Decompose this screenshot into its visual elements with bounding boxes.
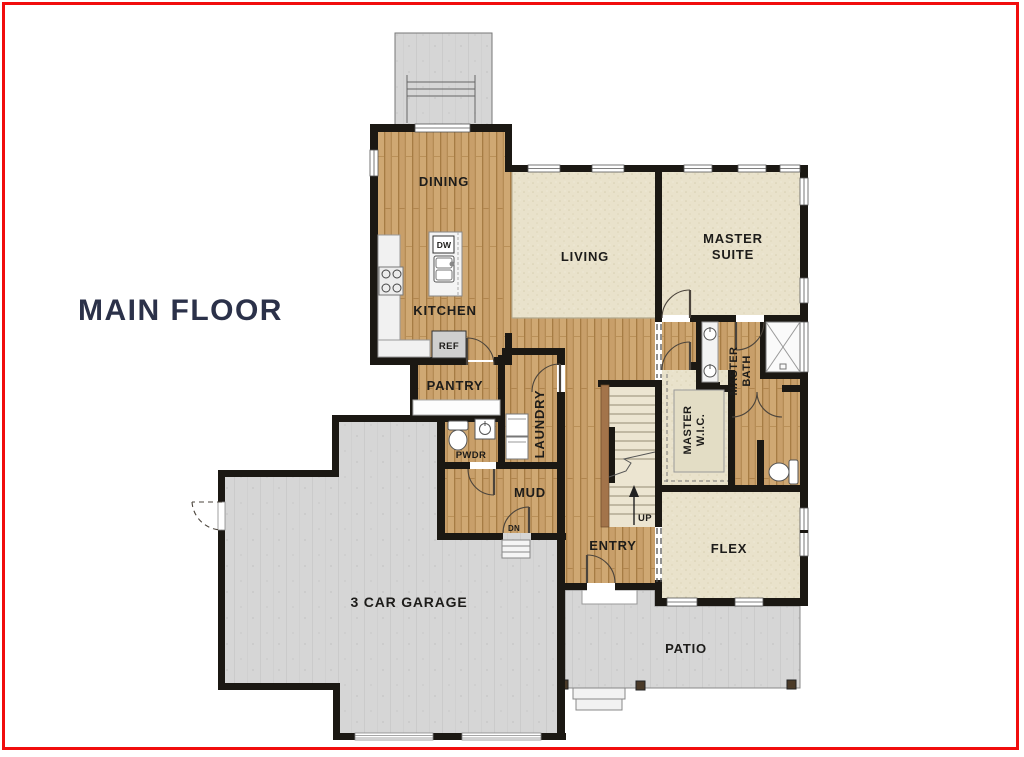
shower-window (800, 322, 808, 372)
washer (506, 414, 528, 436)
patio-post (787, 680, 796, 689)
master-bath-label-line1: MASTER (728, 347, 740, 396)
pwdr-sink (475, 419, 495, 439)
pantry-label: PANTRY (427, 378, 484, 393)
basement-stairs (502, 540, 530, 558)
garage-side-door (192, 502, 222, 530)
master-wic-label-line1: MASTER (682, 406, 694, 455)
laundry-label: LAUNDRY (532, 390, 547, 459)
mud-label: MUD (514, 485, 546, 500)
dryer (506, 437, 528, 459)
flex-label: FLEX (711, 541, 747, 556)
master-bath-label-line2: BATH (741, 355, 753, 386)
pantry-shelf (413, 400, 500, 415)
page-title: MAIN FLOOR (78, 294, 283, 328)
pwdr-label: PWDR (456, 450, 487, 461)
patio-step (576, 699, 622, 710)
kitchen-counter (378, 235, 400, 357)
stairs-down-label: DN (508, 524, 520, 533)
laundry-fixtures (506, 414, 528, 459)
pwdr-toilet (448, 421, 468, 450)
entry-label: ENTRY (589, 538, 637, 553)
kitchen-label: KITCHEN (413, 303, 476, 318)
dining-window (370, 150, 378, 176)
master-wic-label-line2: W.I.C. (695, 414, 707, 446)
floor-plan-page: MAIN FLOOR (0, 0, 1024, 757)
entry-stoop (582, 590, 637, 604)
patio-step (573, 688, 625, 699)
master-suite-label-line1: MASTER (703, 231, 763, 246)
dishwasher-label: DW (437, 240, 452, 250)
living-floor (512, 172, 655, 318)
mud-floor (445, 469, 557, 533)
patio-post (636, 681, 645, 690)
garage-side-door-opening (218, 502, 225, 530)
kitchen-sink (434, 256, 455, 282)
stairs-up-label: UP (638, 513, 652, 524)
floor-plan-drawing: DINING LIVING MASTER SUITE KITCHEN PANTR… (0, 0, 1024, 757)
shower (766, 322, 800, 372)
stair-stringer (601, 385, 609, 527)
refrigerator-label: REF (439, 341, 459, 352)
garage-label: 3 CAR GARAGE (351, 594, 468, 610)
rear-porch-floor (395, 33, 492, 125)
living-label: LIVING (561, 249, 609, 264)
dining-label: DINING (419, 174, 469, 189)
master-suite-label-line2: SUITE (712, 247, 754, 262)
kitchen-counter (378, 340, 430, 357)
porch-door-window (415, 124, 470, 132)
cooktop (379, 267, 403, 295)
patio-label: PATIO (665, 641, 707, 656)
